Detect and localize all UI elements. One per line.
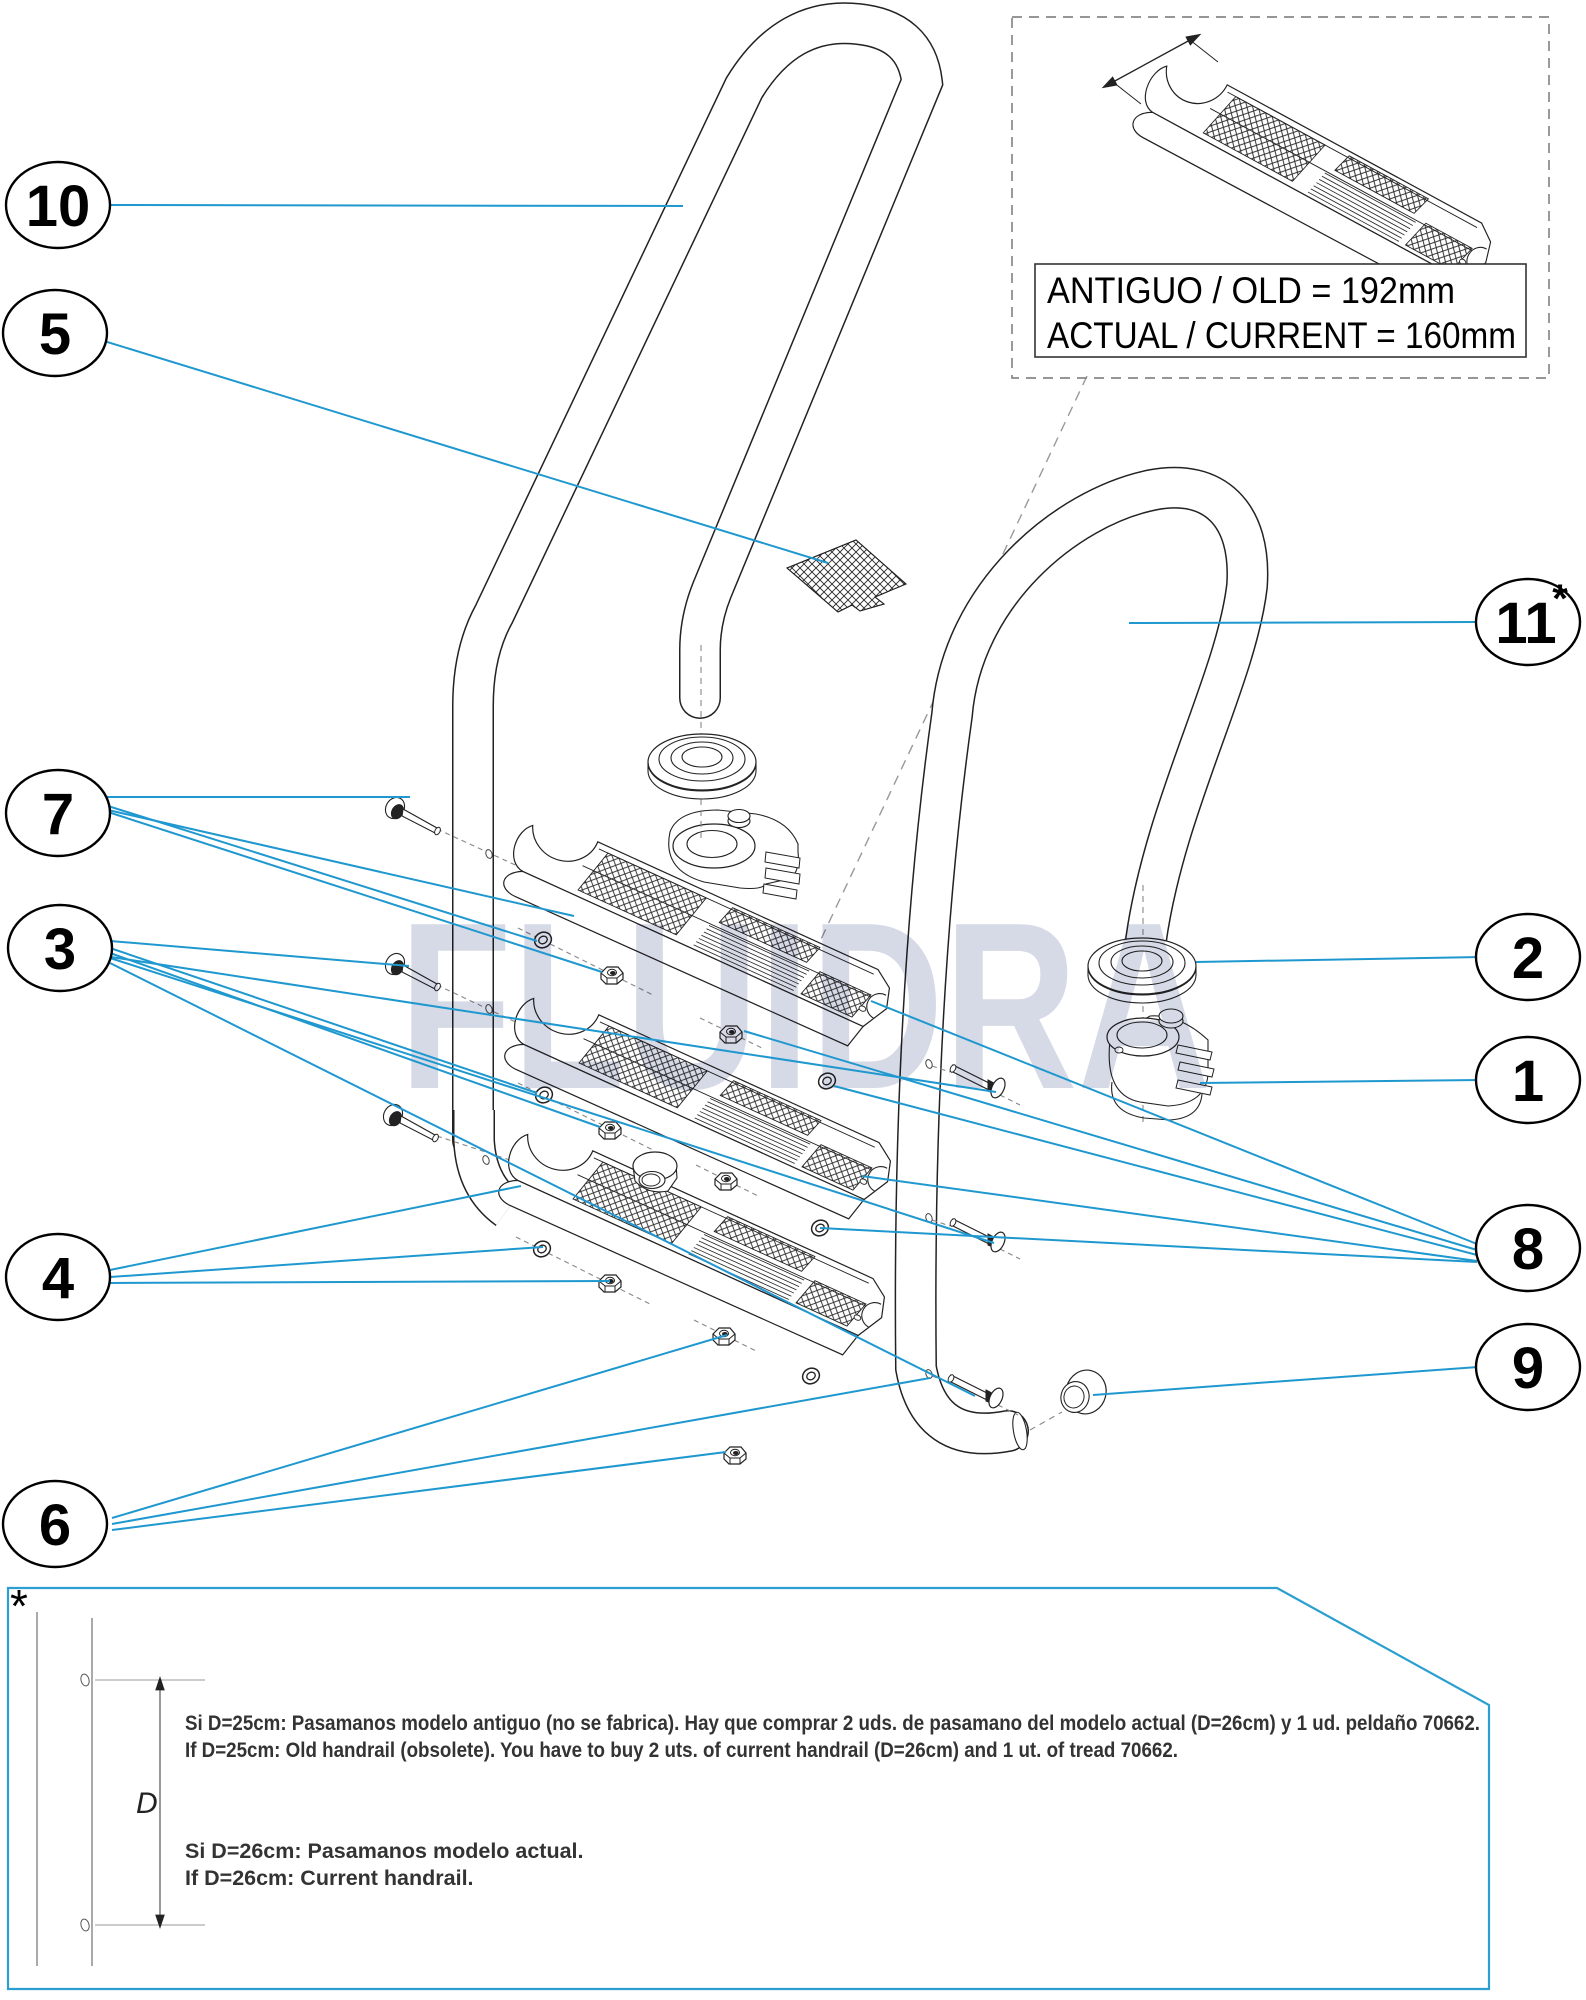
svg-text:D: D [136,1787,158,1820]
svg-text:11: 11 [1495,591,1556,656]
svg-text:6: 6 [39,1493,71,1558]
svg-text:If D=25cm: Old handrail (obsol: If D=25cm: Old handrail (obsolete). You … [185,1738,1178,1762]
svg-text:9: 9 [1512,1336,1544,1401]
svg-text:Si D=26cm: Pasamanos modelo ac: Si D=26cm: Pasamanos modelo actual. [185,1839,584,1863]
svg-text:4: 4 [42,1246,74,1311]
svg-text:*: * [1552,577,1568,621]
svg-text:ANTIGUO / OLD = 192mm: ANTIGUO / OLD = 192mm [1047,270,1455,311]
svg-text:3: 3 [44,917,76,982]
svg-text:8: 8 [1512,1217,1544,1282]
svg-text:7: 7 [42,782,74,847]
svg-text:5: 5 [39,302,71,367]
svg-text:If D=26cm: Current handrail.: If D=26cm: Current handrail. [185,1866,474,1890]
svg-text:ACTUAL / CURRENT = 160mm: ACTUAL / CURRENT = 160mm [1047,315,1516,356]
svg-text:Si D=25cm: Pasamanos modelo an: Si D=25cm: Pasamanos modelo antiguo (no … [185,1711,1480,1735]
svg-text:*: * [10,1580,28,1632]
svg-text:10: 10 [26,174,91,239]
svg-text:2: 2 [1512,926,1544,991]
svg-text:1: 1 [1512,1049,1544,1114]
